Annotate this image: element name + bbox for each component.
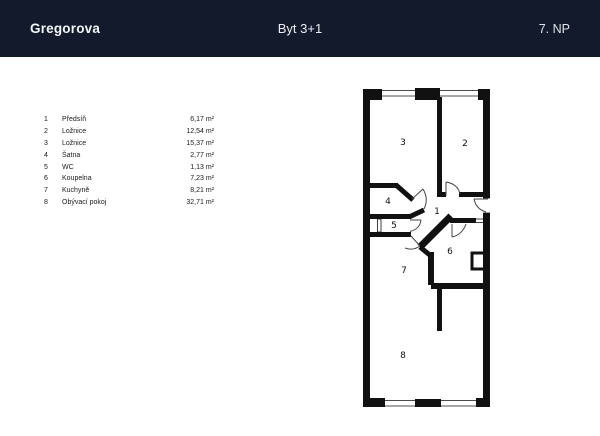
room-label-bedroom-right: 2 [462,139,468,149]
door-bedroom2 [446,182,460,196]
wall-diagonal-hall-kitchen [420,216,451,247]
wall-bathroom-top [450,218,476,223]
wall-pier-bottom-right [476,398,490,407]
wall-room3-bottom [368,183,398,188]
wall-left [363,89,370,407]
wall-pier-top-right [478,89,490,100]
room-label-bathroom: 6 [447,247,453,257]
room-label-hall: 1 [434,207,440,217]
door-bathroom [452,224,466,237]
room-label-living: 8 [400,351,406,361]
wall-tick-right [485,247,490,251]
door-entrance [474,199,488,212]
wall-pier-bottom-mid [415,399,441,407]
room-label-kitchen: 7 [401,266,407,276]
floor-plan-drawing: 1 2 3 4 5 6 7 8 [0,0,600,436]
wall-wc-bottom [368,232,411,237]
wall-pier-top-mid [415,88,440,100]
wall-diagonal-hall-upper [396,185,413,200]
wall-right-upper [483,89,490,198]
door-kitchen [405,236,420,249]
wall-diagonal-closet [409,210,424,217]
room-label-wc: 5 [391,221,397,231]
wall-pier-bottom-left [363,398,385,407]
door-bedroom3 [412,189,426,209]
wall-right-lower [483,213,490,407]
wall-bathroom-left [428,252,434,285]
wall-closet-wc-divider [368,214,411,219]
wall-bedrooms-divider [437,97,442,194]
wall-bathroom-bottom [431,283,488,289]
wall-pier-top-left [363,89,382,100]
wall-kitchen-living-stub [437,289,442,331]
wall-hall-north-a [437,192,446,197]
door-wc [410,220,421,232]
duct-shaft [378,219,382,232]
wall-hall-north-b [459,192,488,197]
room-label-bedroom-left: 3 [400,138,406,148]
floorplan-sheet: Gregorova Byt 3+1 7. NP 1Předsíň6,17 m²2… [0,0,600,436]
room-label-closet: 4 [385,197,391,207]
